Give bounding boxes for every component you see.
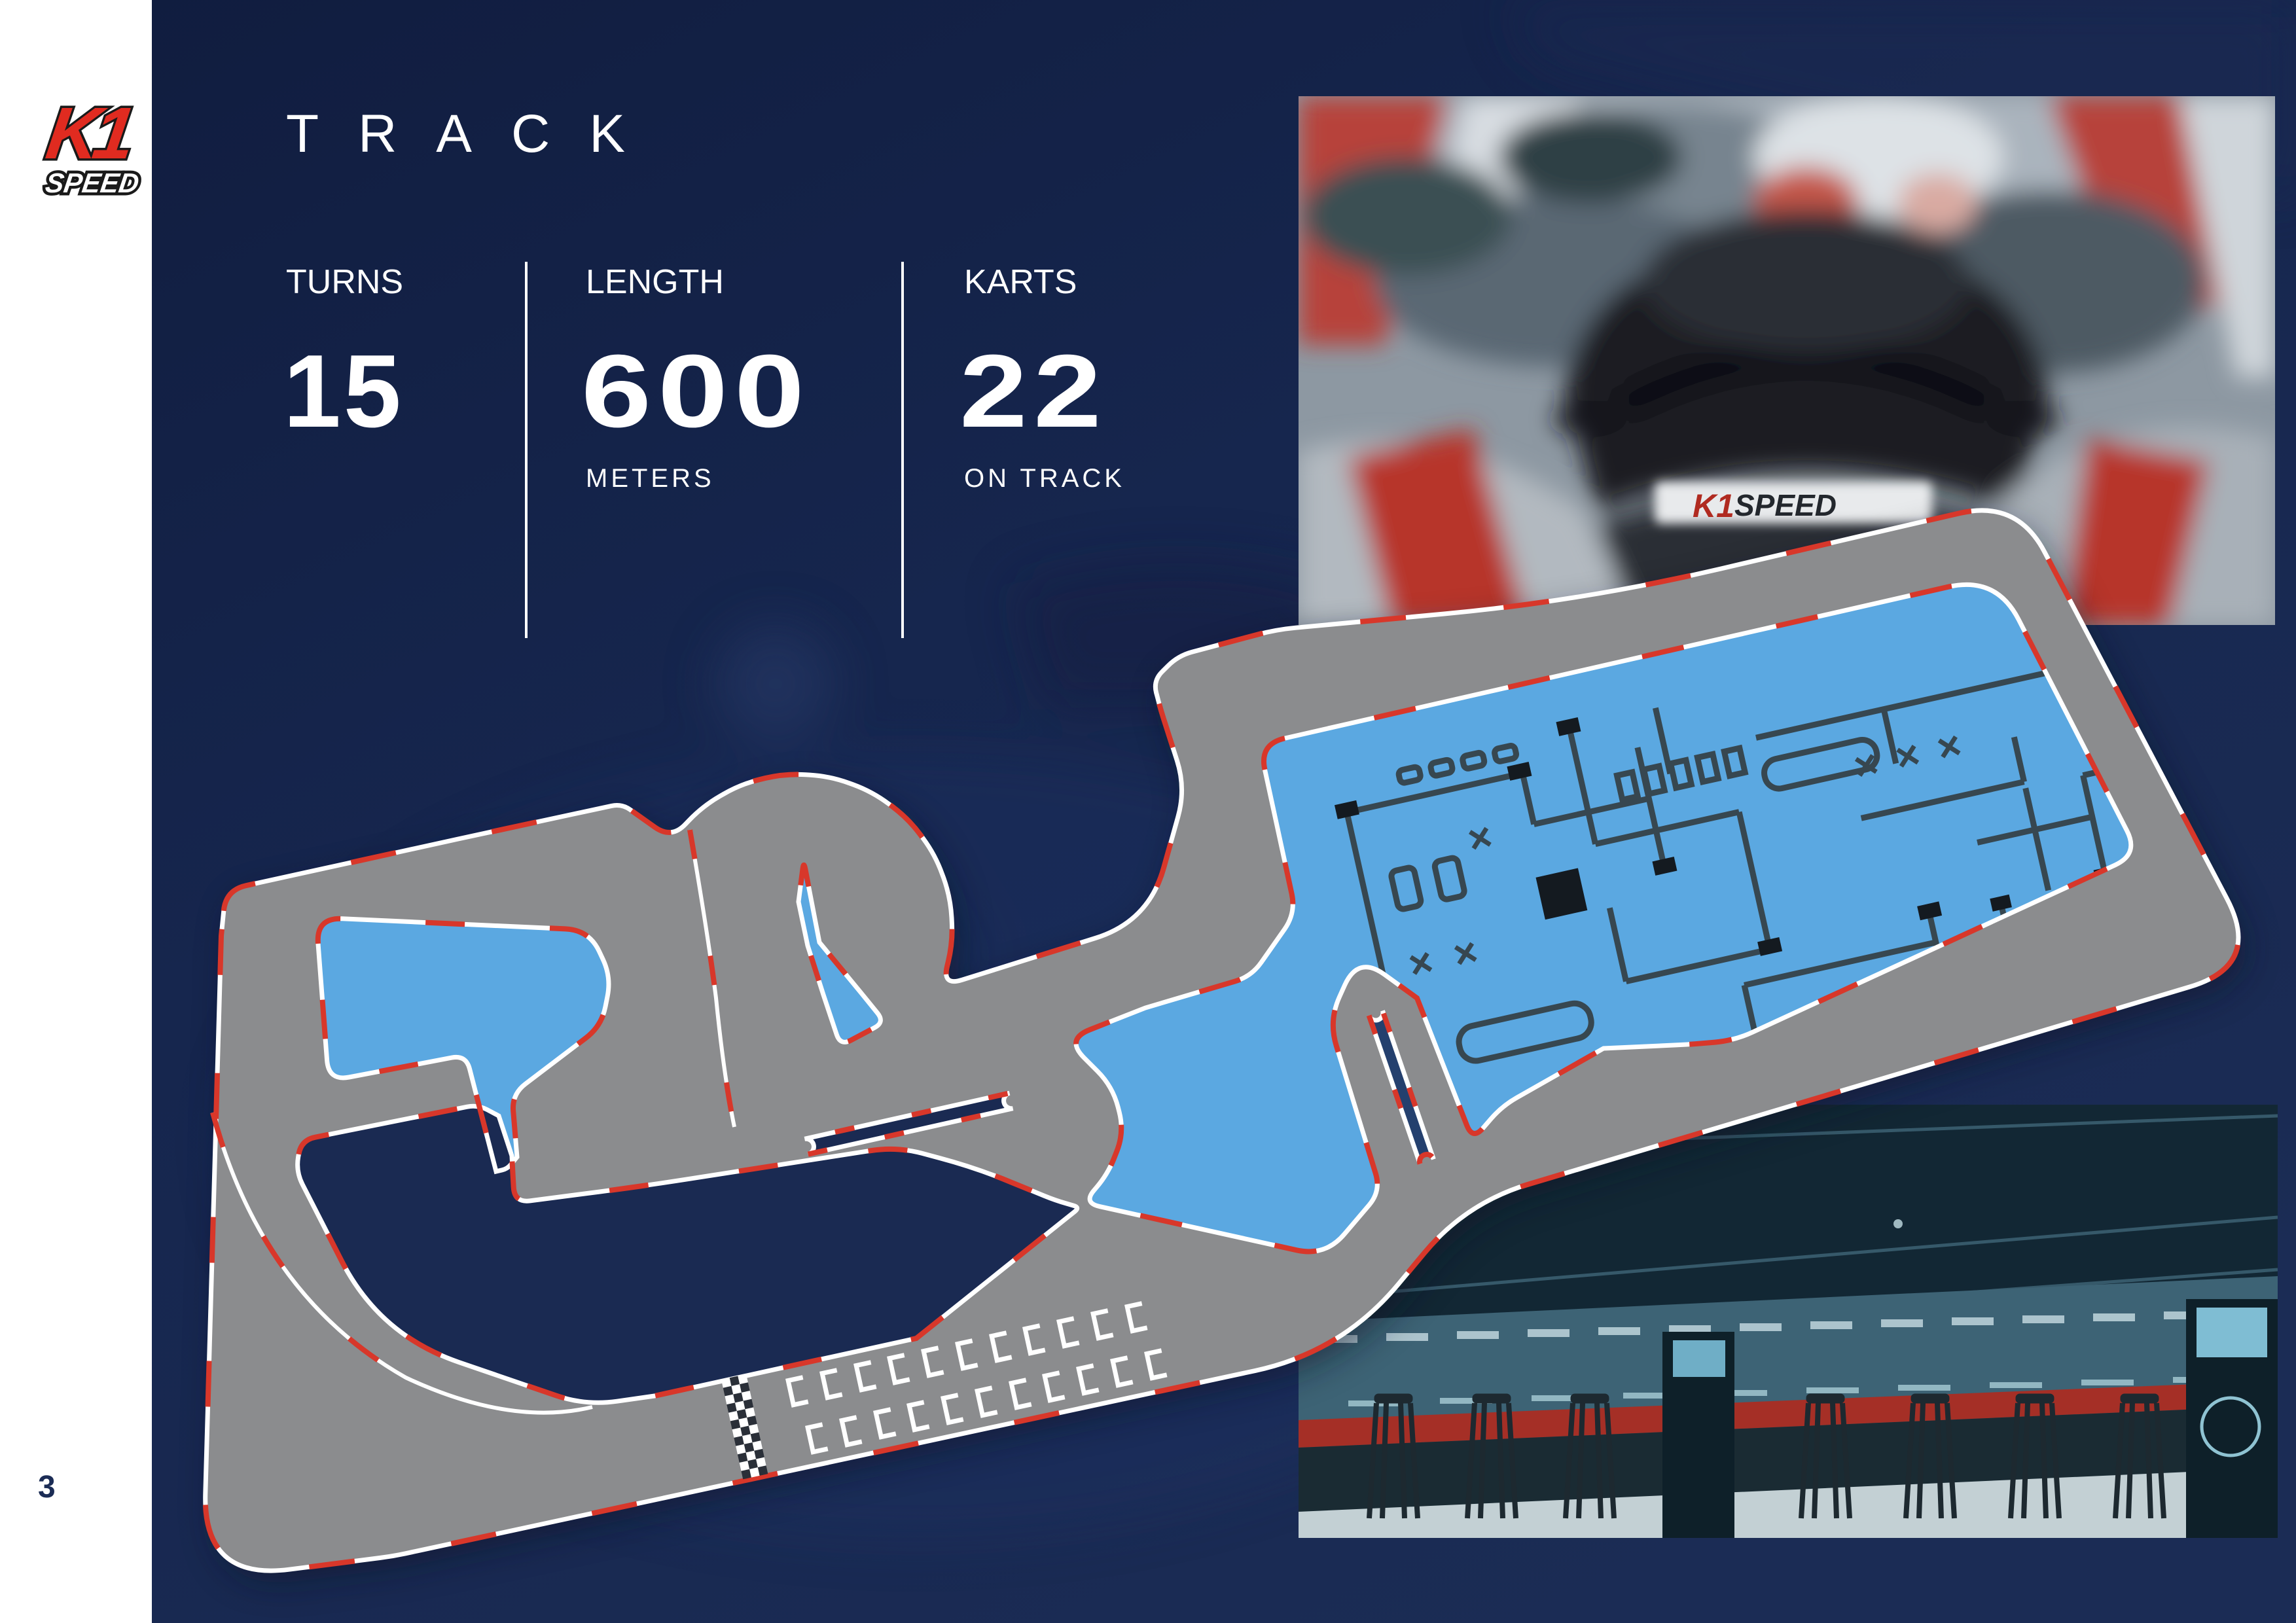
svg-text:SPEED: SPEED	[1734, 488, 1837, 522]
svg-text:ON TRACK: ON TRACK	[964, 464, 1125, 493]
svg-text:K1: K1	[42, 92, 137, 173]
svg-text:600: 600	[581, 333, 811, 449]
svg-text:3: 3	[38, 1470, 56, 1505]
svg-text:KARTS: KARTS	[964, 263, 1077, 301]
svg-text:SPEED: SPEED	[44, 168, 141, 198]
svg-text:15: 15	[283, 334, 404, 449]
svg-text:METERS: METERS	[586, 464, 715, 493]
svg-text:22: 22	[960, 333, 1107, 448]
svg-text:LENGTH: LENGTH	[586, 263, 724, 301]
svg-text:K1: K1	[1693, 488, 1734, 524]
svg-text:TRACK: TRACK	[286, 104, 664, 164]
svg-text:TURNS: TURNS	[286, 263, 403, 301]
